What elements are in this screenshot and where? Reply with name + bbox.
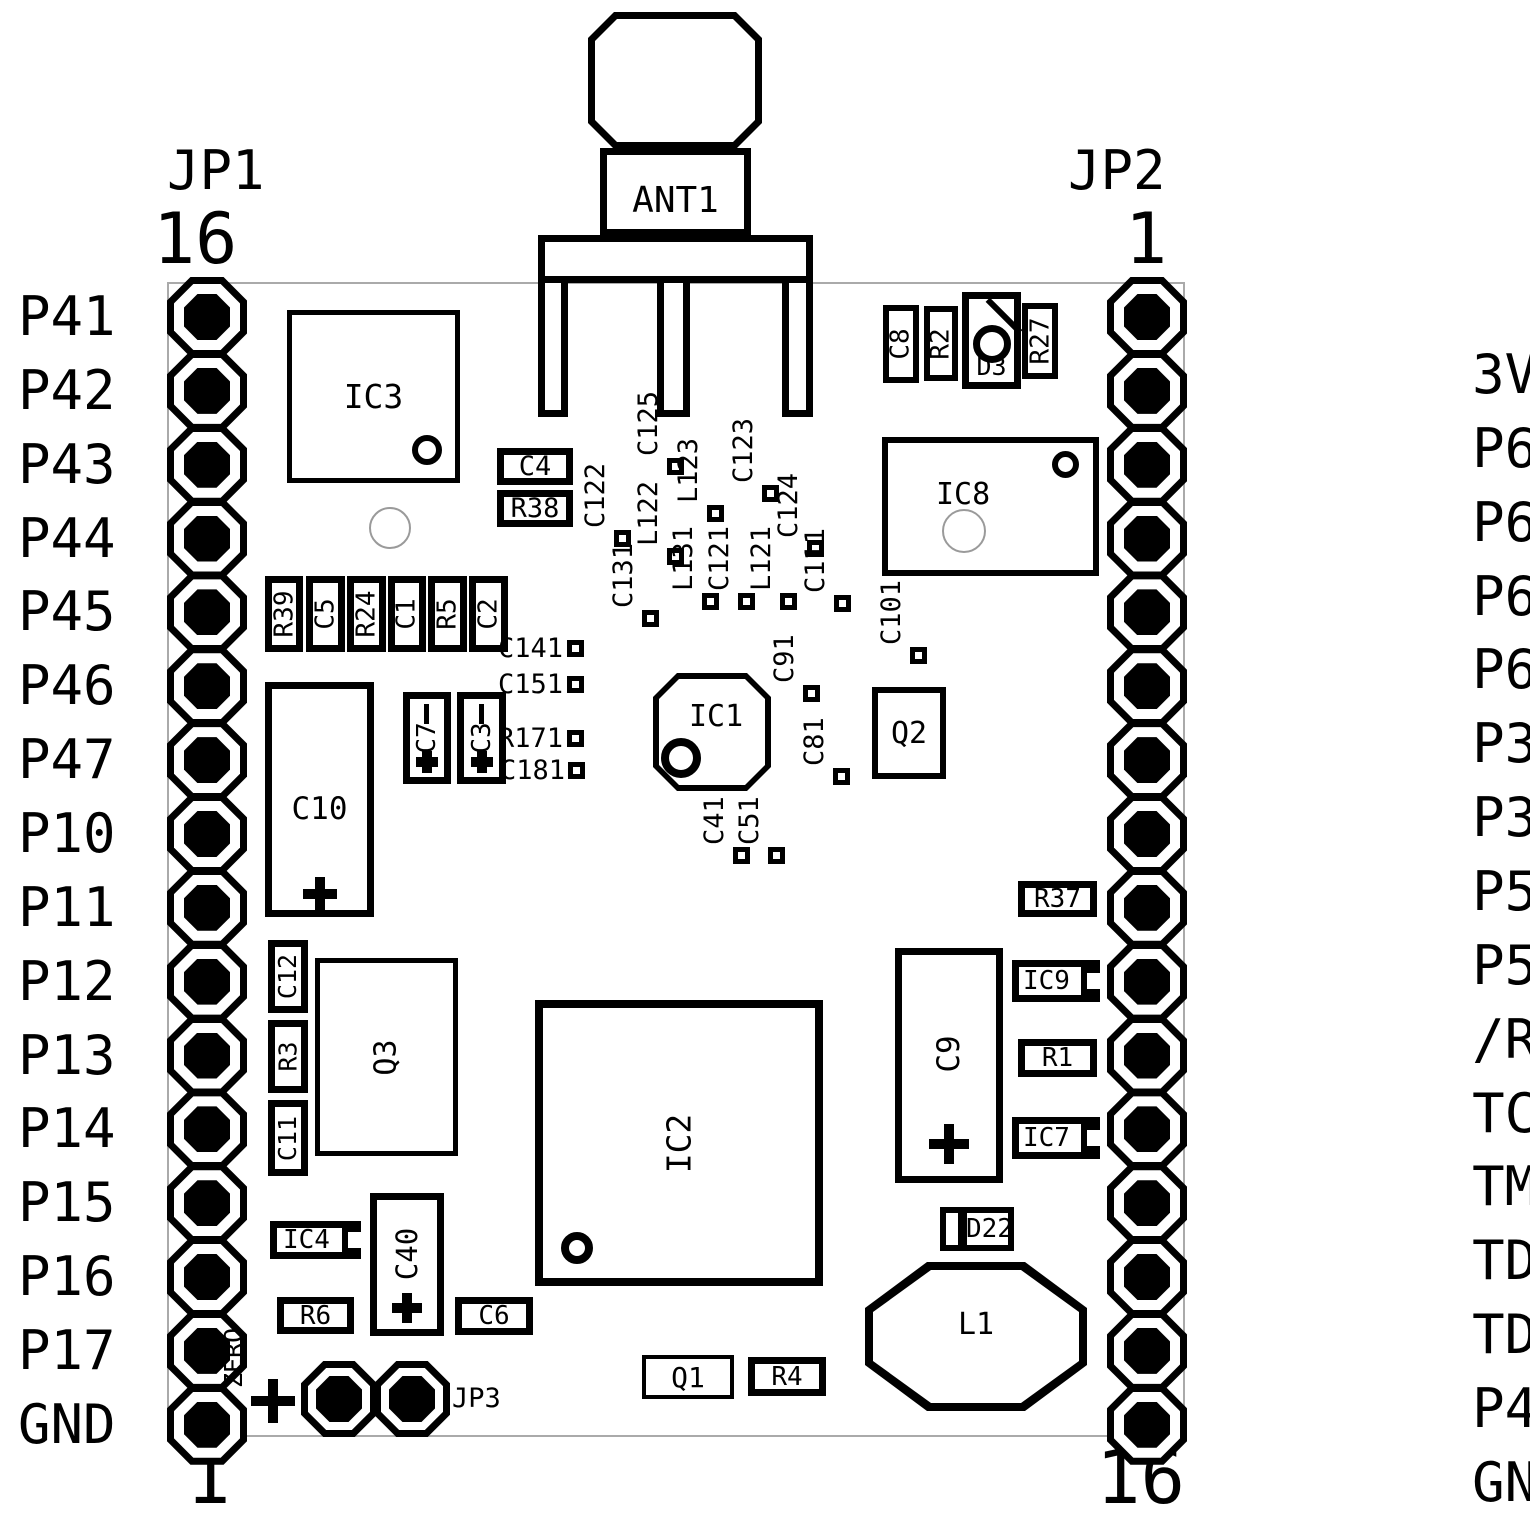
component-r1: R1	[1018, 1039, 1097, 1077]
component-q1: Q1	[642, 1355, 734, 1399]
jp2-pin-row: 3V	[1212, 288, 1530, 346]
smd-pad-c181	[568, 762, 585, 779]
smd-pad-l123	[707, 505, 724, 522]
smd-pad-c141	[567, 640, 584, 657]
jp2-pin-row: P37RxD1	[1212, 657, 1530, 715]
ic7-notch	[1081, 1124, 1100, 1152]
pin1-marker-circle	[1052, 451, 1079, 478]
pad-hole	[1124, 1033, 1170, 1079]
jp2-pin-pad	[1107, 1163, 1187, 1243]
jp1-pin-label: P47	[18, 731, 116, 789]
component-ic3: IC3	[287, 310, 460, 483]
antenna-head-body	[595, 19, 755, 142]
smd-label-c122: C122	[583, 463, 609, 528]
jp2-pin-row: TDI	[1212, 1174, 1530, 1232]
component-label: C11	[274, 1115, 303, 1160]
component-label: C9	[931, 1036, 967, 1073]
antenna-leg-right	[782, 276, 813, 417]
component-label: C12	[274, 954, 303, 999]
jp2-pin-row: P55	[1212, 879, 1530, 937]
jp1-pin-label: P45	[18, 583, 116, 641]
jp2-pin-row: P65ADC5	[1212, 510, 1530, 568]
jp1-pin-label: P14	[18, 1100, 116, 1158]
smd-label-c41: C41	[702, 796, 728, 845]
pad-hole	[1124, 1106, 1170, 1152]
component-label: C40	[390, 1228, 424, 1280]
component-c11: C11	[268, 1100, 308, 1176]
jp3-pad-2	[374, 1361, 450, 1437]
component-label: R39	[269, 591, 299, 638]
component-label: R38	[511, 493, 560, 524]
jp2-label: JP2	[1068, 143, 1166, 199]
jp1-label: JP1	[167, 143, 265, 199]
jp2-pin-row: /RST_NMI	[1212, 953, 1530, 1011]
jp1-pin-label: P13	[18, 1027, 116, 1085]
smd-label-c181: C181	[425, 757, 565, 784]
antenna-leg-left	[538, 276, 568, 417]
pad-hole	[184, 294, 230, 340]
smd-pad-r171	[567, 730, 584, 747]
component-label: Q1	[671, 1361, 705, 1394]
smd-label-c123: C123	[731, 418, 757, 483]
smd-label-c131: C131	[611, 543, 637, 608]
component-label: IC4	[283, 1225, 330, 1255]
antenna-stem: ANT1	[600, 148, 751, 236]
c7-minus-mark	[424, 704, 429, 724]
jp3-pad-1	[301, 1361, 377, 1437]
pad-hole	[1124, 442, 1170, 488]
smd-label-c111: C111	[803, 528, 829, 593]
jp2-pin-pad	[1107, 942, 1187, 1022]
jp2-pin-row: TMS	[1212, 1100, 1530, 1158]
jp2-pin-pad	[1107, 425, 1187, 505]
component-label: IC2	[659, 1113, 698, 1173]
jp1-pin-pad	[167, 499, 247, 579]
jp2-pin-row: P66DAC0	[1212, 436, 1530, 494]
jp1-pin-label: P42	[18, 362, 116, 420]
jp2-pin-pad	[1107, 1237, 1187, 1317]
jp1-pin-label: P16	[18, 1248, 116, 1306]
smd-label-c101: C101	[879, 580, 905, 645]
pad-hole	[184, 1180, 230, 1226]
jp1-pin-label: GND	[18, 1396, 116, 1454]
jp1-pin-label: P43	[18, 436, 116, 494]
component-d22: D22	[940, 1207, 1014, 1251]
component-c6: C6	[455, 1297, 533, 1335]
smd-pad-c121	[738, 593, 755, 610]
component-r4: R4	[748, 1357, 826, 1396]
pad-hole	[1124, 811, 1170, 857]
smd-pad-c131	[642, 610, 659, 627]
antenna-base-bar	[538, 235, 813, 283]
jp1-pin-pad	[167, 277, 247, 357]
component-label: R2	[926, 328, 956, 359]
smd-pad-c81	[833, 768, 850, 785]
jp2-pin-row: TDO/TDI	[1212, 1248, 1530, 1306]
component-label: C10	[292, 791, 348, 827]
jp1-pin-label: P44	[18, 510, 116, 568]
component-r38: R38	[497, 490, 573, 527]
component-c12: C12	[268, 940, 308, 1013]
jp1-pin-pad	[167, 1237, 247, 1317]
jp2-pin-pad	[1107, 277, 1187, 357]
jp2-pin-row: P40	[1212, 1322, 1530, 1380]
component-label: C5	[311, 598, 341, 629]
smd-pad-c51	[768, 847, 785, 864]
component-label: C1	[392, 598, 422, 629]
smd-label-l131: L131	[671, 526, 697, 591]
jp1-pin-label: P46	[18, 657, 116, 715]
component-ic2: IC2	[535, 1000, 823, 1286]
component-c9: C9	[895, 948, 1003, 1183]
jp1-pin-label: P11	[18, 879, 116, 937]
jp1-pin-pad	[167, 1016, 247, 1096]
pin1-marker-circle	[412, 435, 442, 465]
component-label: C4	[519, 451, 552, 482]
smd-label-c151: C151	[423, 671, 563, 698]
pad-hole	[1124, 1402, 1170, 1448]
jp1-pin-pad	[167, 1163, 247, 1243]
ic9-notch	[1081, 967, 1100, 995]
component-c1: C1	[388, 576, 426, 652]
via-circle	[369, 507, 411, 549]
c10-plus-mark	[303, 877, 337, 911]
smd-label-c81: C81	[802, 717, 828, 766]
jp1-pin-pad	[167, 720, 247, 800]
pad-hole	[184, 737, 230, 783]
smd-pad-l121	[780, 593, 797, 610]
component-r24: R24	[347, 576, 386, 652]
jp1-pin-pad	[167, 1385, 247, 1465]
component-c10: C10	[265, 682, 374, 917]
jp2-pin-pad	[1107, 1016, 1187, 1096]
pad-hole	[184, 1402, 230, 1448]
component-q3: Q3	[315, 958, 458, 1156]
jp1-pin-pad	[167, 646, 247, 726]
jp1-pin-pad	[167, 942, 247, 1022]
pad-hole	[184, 959, 230, 1005]
l1-body: L1	[873, 1270, 1079, 1403]
pad-hole	[1124, 1254, 1170, 1300]
smd-label-c91: C91	[772, 634, 798, 683]
jp2-top-pin-number: 1	[1125, 203, 1167, 275]
component-label: R5	[433, 598, 463, 629]
component-label: IC3	[344, 377, 404, 416]
pad-hole	[184, 516, 230, 562]
pad-hole	[184, 1254, 230, 1300]
pad-hole	[184, 589, 230, 635]
jp2-pin-row: GND	[1212, 1396, 1530, 1454]
antenna-label: ANT1	[632, 180, 719, 221]
smd-pad-c91	[803, 685, 820, 702]
jp2-pin-pad	[1107, 1089, 1187, 1169]
pin1-marker-circle	[661, 738, 701, 778]
jp1-pin-pad	[167, 572, 247, 652]
pad-hole	[1124, 516, 1170, 562]
component-ic7: IC7	[1012, 1117, 1100, 1159]
component-label: R4	[771, 1362, 802, 1392]
jp2-pin-pad	[1107, 572, 1187, 652]
component-label: IC7	[1023, 1123, 1070, 1153]
component-label: C8	[886, 328, 916, 359]
via-circle	[942, 509, 986, 553]
smd-pad-c101	[910, 647, 927, 664]
jp1-pin-pad	[167, 351, 247, 431]
component-label: Q3	[369, 1039, 404, 1075]
antenna-head	[588, 12, 762, 149]
jp1-pin-label: P17	[18, 1322, 116, 1380]
component-label: C6	[478, 1301, 509, 1331]
component-c5: C5	[306, 576, 345, 652]
pin1-marker-circle	[561, 1232, 593, 1264]
jp2-pin-row: P54	[1212, 805, 1530, 863]
pad-hole	[1124, 663, 1170, 709]
jp1-pin-pad	[167, 1089, 247, 1169]
component-r39: R39	[265, 576, 303, 652]
component-label: C2	[474, 598, 504, 629]
jp1-pin-pad	[167, 425, 247, 505]
pad-hole	[184, 368, 230, 414]
component-r6: R6	[277, 1297, 354, 1334]
c40-plus-mark	[392, 1293, 422, 1323]
component-ic4: IC4	[270, 1221, 361, 1259]
component-label: R37	[1034, 884, 1081, 914]
jp1-pin-label: P41	[18, 288, 116, 346]
component-ic9: IC9	[1012, 960, 1100, 1002]
antenna-leg-middle	[657, 276, 690, 417]
component-label: D3	[976, 352, 1006, 381]
component-label: R24	[352, 591, 382, 638]
pad-hole	[184, 811, 230, 857]
component-label: IC9	[1023, 966, 1070, 996]
jp2-pin-pad	[1107, 351, 1187, 431]
component-r37: R37	[1018, 881, 1097, 917]
smd-label-l123: L123	[676, 438, 702, 503]
jp1-pin-label: P12	[18, 953, 116, 1011]
jp2-pin-pad	[1107, 1385, 1187, 1465]
pad-hole	[1124, 885, 1170, 931]
jp2-pin-pad	[1107, 646, 1187, 726]
jp2-pin-pad	[1107, 1311, 1187, 1391]
jp2-pin-name: GND	[1472, 1454, 1530, 1512]
jp1-pin-pad	[167, 794, 247, 874]
pad-hole	[184, 885, 230, 931]
pad-hole	[316, 1376, 362, 1422]
component-ic1: IC1	[653, 673, 771, 791]
jp1-top-pin-number: 16	[153, 203, 237, 275]
jp3-label: JP3	[452, 1383, 501, 1414]
pad-hole	[389, 1376, 435, 1422]
smd-pad-l131	[702, 593, 719, 610]
c9-plus-mark	[929, 1124, 969, 1164]
component-label: IC8	[936, 477, 990, 512]
pad-hole	[1124, 959, 1170, 1005]
pad-hole	[184, 442, 230, 488]
component-r3: R3	[268, 1020, 308, 1093]
component-label: R3	[274, 1041, 303, 1071]
jp2-pin-row: P64ADC4	[1212, 583, 1530, 641]
smd-label-c124: C124	[776, 473, 802, 538]
ic4-notch	[342, 1226, 361, 1254]
zero-plus-mark	[251, 1379, 295, 1423]
pad-hole	[1124, 589, 1170, 635]
jp2-pin-row: P67DAC1	[1212, 362, 1530, 420]
component-ic8: IC8	[882, 437, 1099, 576]
jp1-pin-pad	[167, 868, 247, 948]
c3-minus-mark	[479, 704, 484, 724]
pad-hole	[1124, 368, 1170, 414]
component-label: R1	[1042, 1043, 1073, 1073]
component-r27: R27	[1022, 303, 1058, 379]
pad-hole	[1124, 294, 1170, 340]
smd-pad-c151	[567, 676, 584, 693]
smd-label-l122: L122	[636, 481, 662, 546]
jp2-pin-pad	[1107, 720, 1187, 800]
component-label: L1	[958, 1307, 994, 1342]
component-label: Q2	[891, 716, 927, 751]
smd-label-r171: R171	[423, 725, 563, 752]
jp2-pin-pad	[1107, 499, 1187, 579]
smd-label-l121: L121	[749, 526, 775, 591]
smd-label-c121: C121	[707, 526, 733, 591]
jp2-pin-pad	[1107, 868, 1187, 948]
pad-hole	[184, 663, 230, 709]
smd-label-c51: C51	[737, 796, 763, 845]
component-r2: R2	[924, 306, 958, 381]
smd-label-c141: C141	[423, 635, 563, 662]
component-l1: L1	[865, 1262, 1087, 1411]
pad-hole	[1124, 1328, 1170, 1374]
jp1-pin-label: P10	[18, 805, 116, 863]
component-label: R6	[300, 1301, 331, 1331]
smd-pad-c111	[834, 595, 851, 612]
component-q2: Q2	[872, 687, 946, 779]
component-label: R27	[1025, 318, 1055, 365]
component-label: D22	[966, 1214, 1013, 1244]
pad-hole	[184, 1106, 230, 1152]
jp1-pin-label: P15	[18, 1174, 116, 1232]
smd-pad-c41	[733, 847, 750, 864]
component-d3: D3	[962, 292, 1021, 389]
pcb-pinout-diagram: ANT1 JP1 16 1	[0, 0, 1530, 1530]
jp2-pin-row: TCK	[1212, 1027, 1530, 1085]
jp2-pin-pad	[1107, 794, 1187, 874]
pad-hole	[1124, 1180, 1170, 1226]
component-c4: C4	[497, 448, 573, 485]
component-c40: C40	[370, 1193, 444, 1336]
zero-label: ZERO	[221, 1328, 247, 1388]
pad-hole	[184, 1033, 230, 1079]
pad-hole	[1124, 737, 1170, 783]
component-label: IC1	[689, 699, 743, 734]
component-c8: C8	[883, 305, 919, 383]
jp2-pin-row: P36TxD1	[1212, 731, 1530, 789]
